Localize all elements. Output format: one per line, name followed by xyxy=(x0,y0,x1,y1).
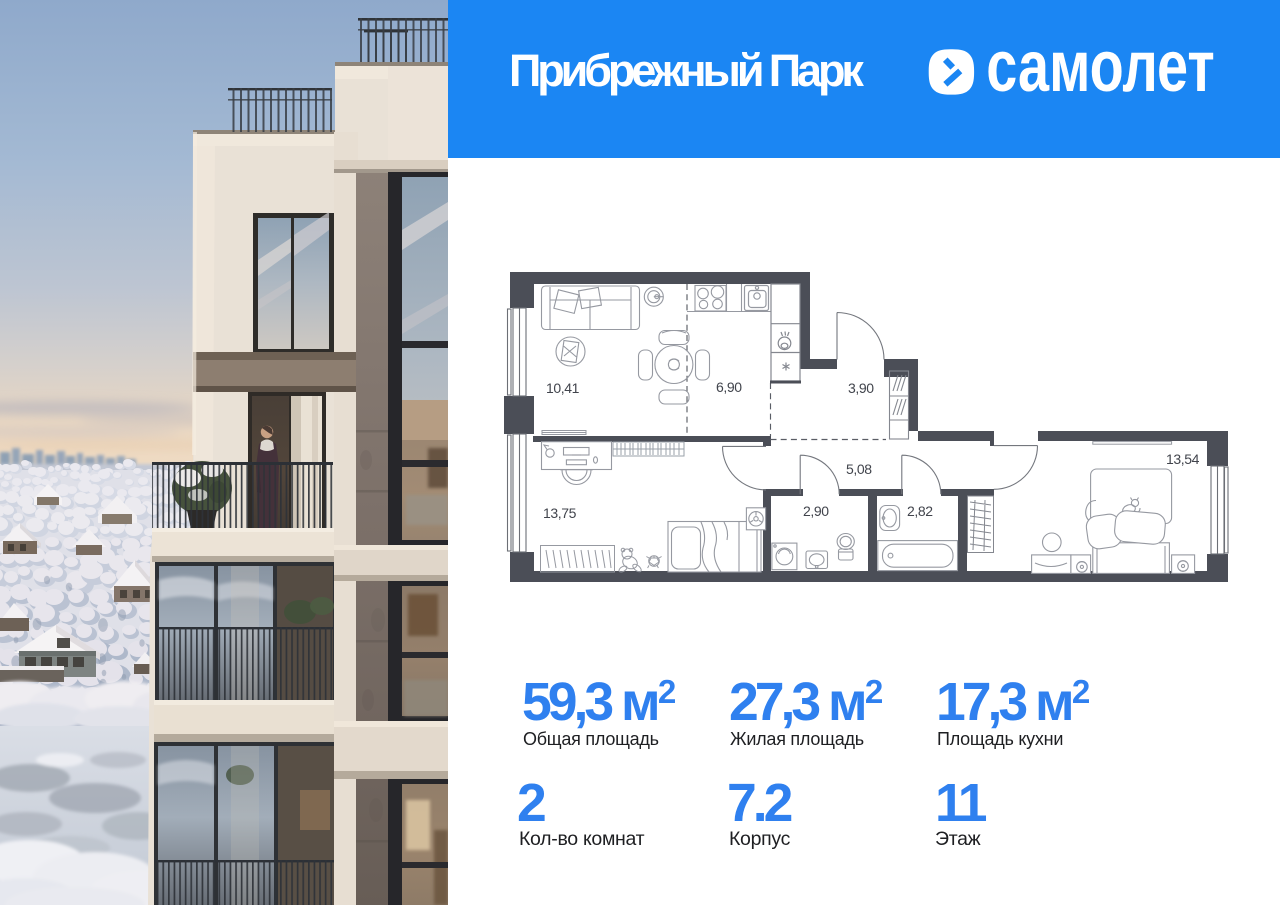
svg-text:3,90: 3,90 xyxy=(848,380,874,396)
svg-text:2,90: 2,90 xyxy=(803,503,829,519)
svg-text:самолет: самолет xyxy=(986,27,1214,107)
svg-text:5,08: 5,08 xyxy=(846,461,872,477)
svg-text:2,82: 2,82 xyxy=(907,503,933,519)
svg-text:13,75: 13,75 xyxy=(543,505,577,521)
svg-text:6,90: 6,90 xyxy=(716,379,742,395)
svg-text:13,54: 13,54 xyxy=(1166,451,1200,467)
svg-text:10,41: 10,41 xyxy=(546,380,580,396)
